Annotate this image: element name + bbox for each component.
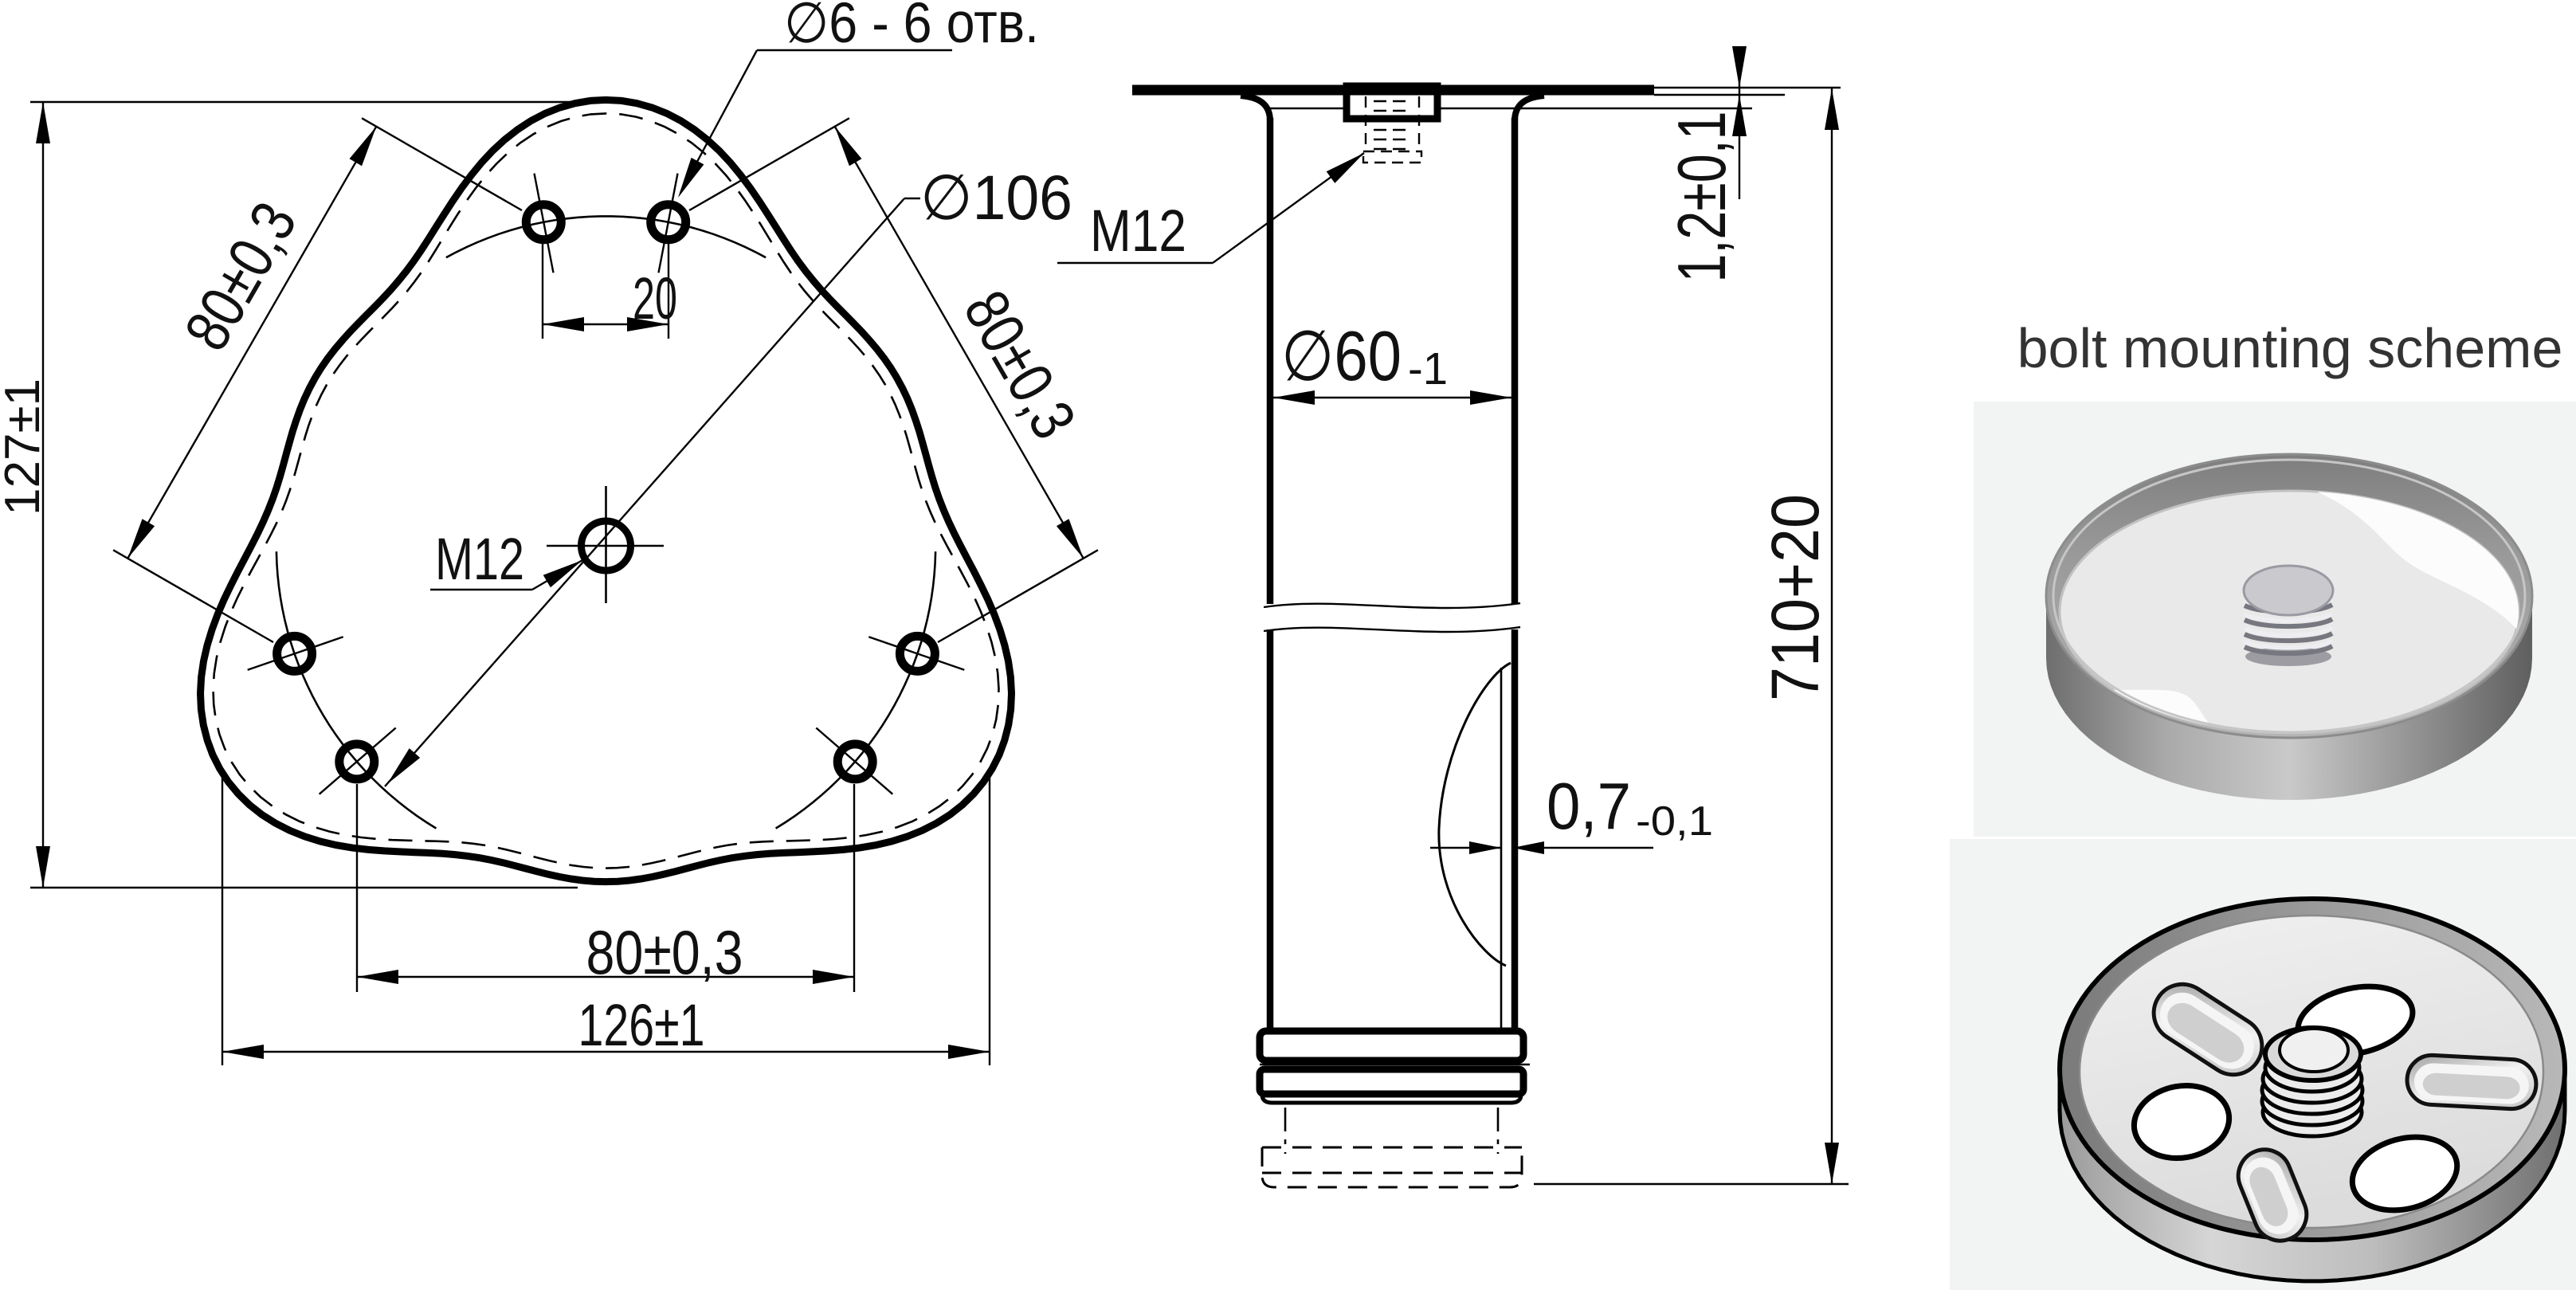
svg-text:-0,1: -0,1 [1636,798,1713,845]
svg-text:127±1: 127±1 [0,378,50,516]
svg-text:∅6 - 6 отв.: ∅6 - 6 отв. [784,0,1039,55]
svg-text:20: 20 [633,265,677,331]
svg-text:M12: M12 [1090,198,1186,264]
svg-text:1,2±0,1: 1,2±0,1 [1664,112,1740,283]
svg-text:∅60: ∅60 [1281,316,1402,395]
svg-text:M12: M12 [435,526,524,592]
svg-text:∅106: ∅106 [920,162,1072,233]
svg-text:710+20: 710+20 [1758,494,1833,701]
svg-text:126±1: 126±1 [578,992,705,1058]
svg-text:bolt mounting scheme: bolt mounting scheme [2017,317,2563,379]
svg-text:0,7: 0,7 [1547,769,1631,843]
svg-text:-1: -1 [1408,343,1448,394]
svg-text:80±0,3: 80±0,3 [586,917,743,987]
